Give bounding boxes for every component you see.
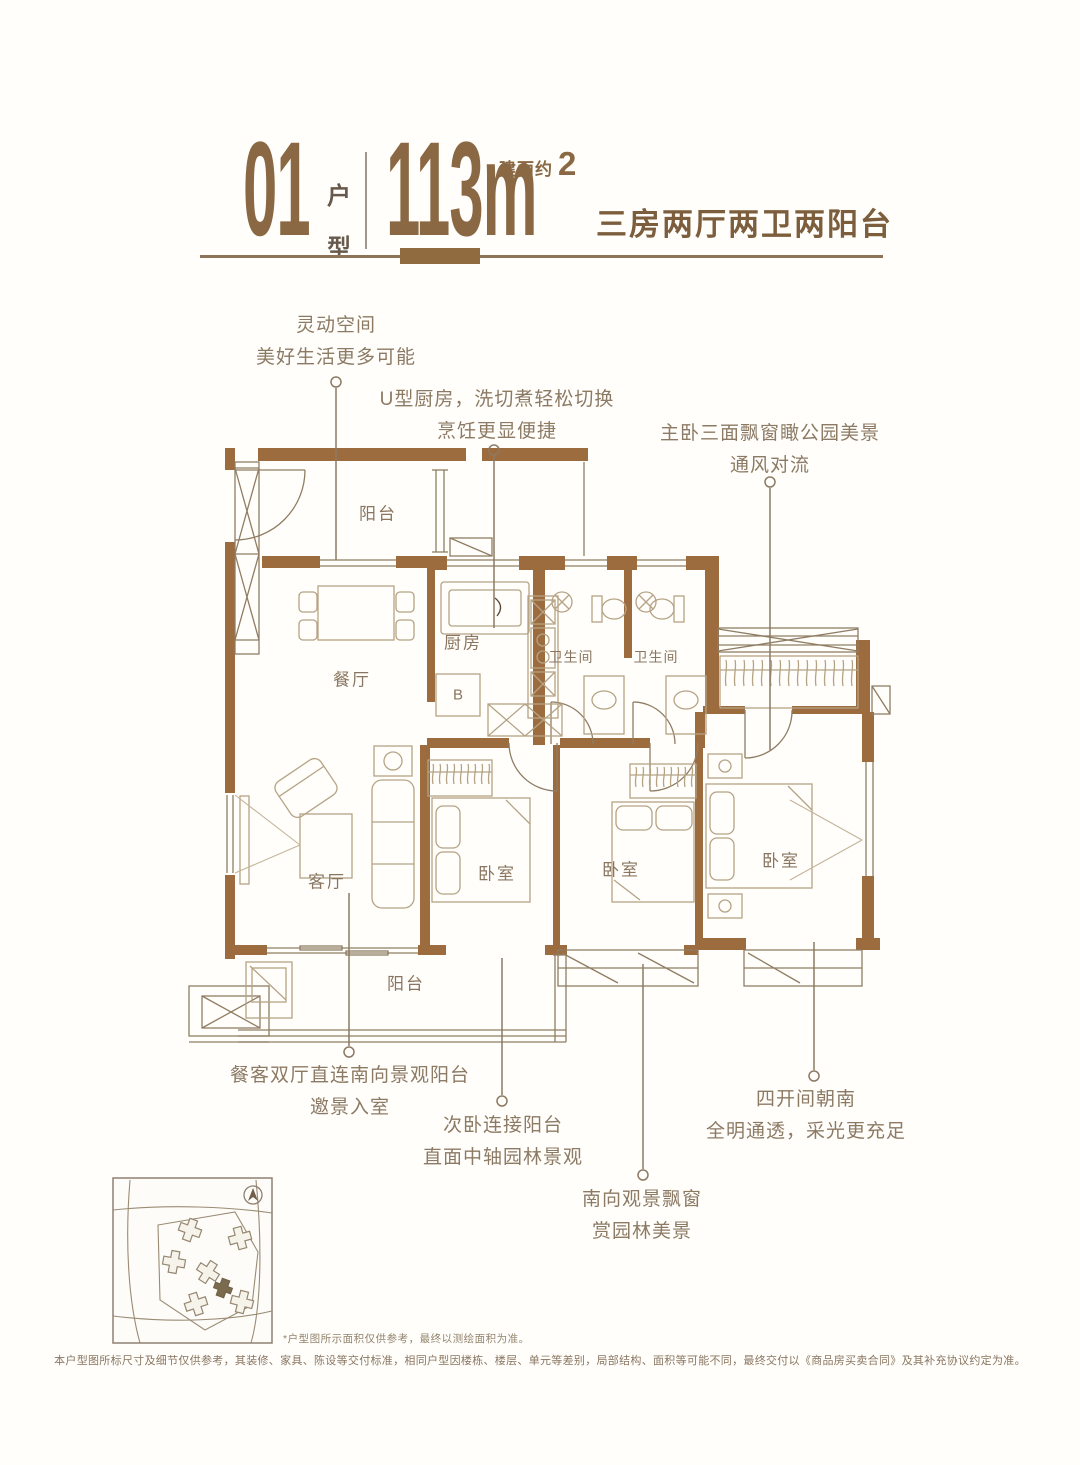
- callout-south-facing: 四开间朝南 全明通透，采光更充足: [706, 1084, 906, 1148]
- area-prefix: 建面约: [499, 155, 553, 180]
- area-footnote: *户型图所示面积仅供参考，最终以测绘面积为准。: [283, 1331, 530, 1346]
- callout-bay-window: 南向观景飘窗 赏园林美景: [582, 1184, 702, 1248]
- bay-windows: [558, 950, 862, 986]
- area-exponent: 2: [558, 145, 576, 183]
- callout-secondary-bedroom: 次卧连接阳台 直面中轴园林景观: [423, 1110, 583, 1174]
- room-label-kitchen-zone: B: [453, 687, 463, 704]
- floorplan-poster: 01 户 型 113m 建面约 2 三房两厅两卫两阳台 灵动空间 美好生活更多可…: [0, 0, 1080, 1465]
- room-label-bedroom-middle: 卧室: [602, 856, 640, 881]
- room-label-living: 客厅: [308, 868, 346, 893]
- unit-label-char-1: 户: [327, 176, 351, 211]
- header-divider-line: [200, 255, 883, 258]
- area-value: 113m: [386, 123, 537, 257]
- balcony-railing: [238, 955, 566, 1042]
- room-label-kitchen: 厨房: [444, 629, 482, 654]
- callout-kitchen: U型厨房，洗切煮轻松切换 烹饪更显便捷: [380, 384, 615, 448]
- site-map: [113, 1178, 272, 1343]
- header-divider-accent: [400, 248, 480, 264]
- room-label-bedroom-master: 卧室: [762, 847, 800, 872]
- room-label-balcony-bottom: 阳台: [387, 970, 425, 995]
- unit-number: 01: [243, 123, 310, 257]
- room-label-bedroom-left: 卧室: [478, 860, 516, 885]
- header-vertical-divider: [365, 152, 367, 249]
- callout-master: 主卧三面飘窗瞰公园美景 通风对流: [660, 418, 880, 482]
- layout-description: 三房两厅两卫两阳台: [596, 199, 893, 244]
- room-label-bathroom-1: 卫生间: [549, 647, 594, 667]
- room-label-bathroom-2: 卫生间: [634, 647, 679, 667]
- unit-label: 户 型: [327, 176, 351, 263]
- room-label-dining: 餐厅: [333, 666, 371, 691]
- legal-disclaimer: 本户型图所标尺寸及细节仅供参考，其装修、家具、陈设等交付标准，相同户型因楼栋、楼…: [40, 1352, 1040, 1368]
- callout-flexible-space: 灵动空间 美好生活更多可能: [256, 310, 416, 374]
- room-label-balcony-top: 阳台: [359, 500, 397, 525]
